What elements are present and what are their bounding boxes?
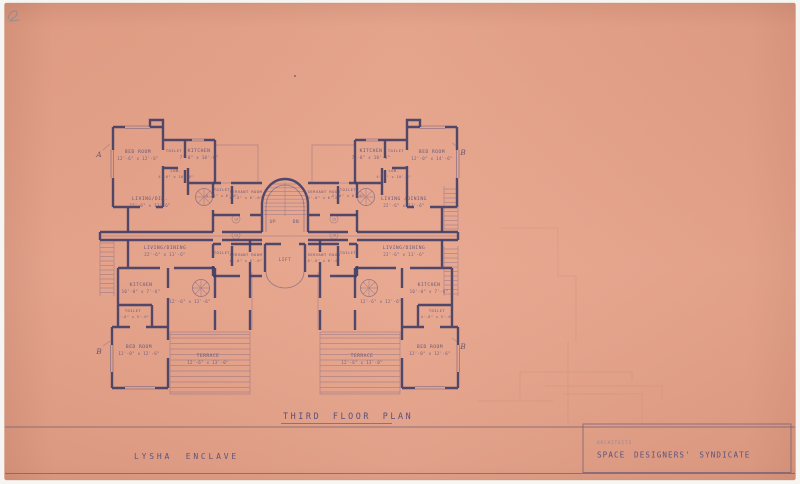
flat-tag: 14 <box>234 217 238 221</box>
svg-text:4'-6" x 10'-6": 4'-6" x 10'-6" <box>376 175 411 179</box>
svg-text:12'-0" x 14'-6": 12'-0" x 14'-6" <box>411 156 452 161</box>
svg-text:TOILET: TOILET <box>214 188 231 192</box>
svg-text:KITCHEN: KITCHEN <box>188 148 211 154</box>
flat-tag: 13 <box>234 233 238 237</box>
svg-text:BED ROOM: BED ROOM <box>417 344 443 350</box>
lift-label: LIFT <box>279 257 292 263</box>
svg-text:7'-0" x 10'-6": 7'-0" x 10'-6" <box>352 155 391 160</box>
svg-text:TERRACE: TERRACE <box>351 353 374 359</box>
architects-name: SPACE DESIGNERS' SYNDICATE <box>597 451 750 460</box>
svg-text:4'-6" x 5'-0": 4'-6" x 5'-0" <box>421 315 454 319</box>
svg-text:22'-6" x 11'-6": 22'-6" x 11'-6" <box>129 203 170 208</box>
section-marker-b-bottom-left: B <box>95 347 102 356</box>
svg-text:7'-0" x 10'-6": 7'-0" x 10'-6" <box>180 155 219 160</box>
room-label-tl-toilet: TOILET <box>166 149 183 153</box>
section-marker-b-bottom-right: B <box>459 342 466 351</box>
svg-text:6'-0" x 6'-6": 6'-0" x 6'-6" <box>230 196 263 200</box>
plan-title: THIRD FLOOR PLAN <box>283 411 413 421</box>
section-marker-a: A <box>95 150 102 159</box>
svg-text:22'-6" x 11'-6": 22'-6" x 11'-6" <box>383 203 424 208</box>
room-label-br-room-dims: 12'-6" x 12'-6" <box>360 299 401 304</box>
stair-up-label: UP <box>270 219 276 225</box>
svg-text:12'-0" x 12'-6": 12'-0" x 12'-6" <box>409 351 450 356</box>
room-label-tr-toilet: TOILET <box>388 149 405 153</box>
svg-text:4'-6" x 5'-0": 4'-6" x 5'-0" <box>117 315 150 319</box>
svg-text:TERRACE: TERRACE <box>197 353 220 359</box>
svg-text:22'-6" x 11'-6": 22'-6" x 11'-6" <box>144 252 185 257</box>
blueprint-sheet: 14 13 15 16 A B B B BED ROOM12'-6" x 12'… <box>0 0 800 484</box>
flat-tag: 15 <box>332 217 336 221</box>
section-marker-b-top: B <box>459 148 466 157</box>
room-label-bl-room-dims: 12'-6" x 12'-6" <box>169 299 210 304</box>
svg-text:10'-0" x 7'-6": 10'-0" x 7'-6" <box>410 289 449 294</box>
svg-text:KITCHEN: KITCHEN <box>360 148 383 154</box>
svg-text:6'-0" x 6'-6": 6'-0" x 6'-6" <box>230 259 263 263</box>
svg-text:TOILET: TOILET <box>429 309 446 313</box>
svg-text:12'-6" x 12'-6": 12'-6" x 12'-6" <box>117 156 158 161</box>
svg-text:22'-6" x 11'-6": 22'-6" x 11'-6" <box>383 252 424 257</box>
architects-label: ARCHITECTS <box>597 440 632 445</box>
paper-speck <box>294 75 296 77</box>
svg-text:10'-0" x 7'-6": 10'-0" x 7'-6" <box>122 289 161 294</box>
project-name: LYSHA ENCLAVE <box>134 452 239 461</box>
room-label-br-core-toilet: TOILET <box>340 251 357 255</box>
room-label-bl-core-toilet: TOILET <box>214 251 231 255</box>
svg-text:12'-6" x 13'-0": 12'-6" x 13'-0" <box>187 360 228 365</box>
svg-text:6'-0" x 6'-6": 6'-0" x 6'-6" <box>308 259 341 263</box>
svg-text:SERVANT ROOM: SERVANT ROOM <box>230 190 263 194</box>
svg-text:TOILET: TOILET <box>125 309 142 313</box>
stair-dn-label: DN <box>293 219 299 225</box>
svg-text:TOILET: TOILET <box>340 188 357 192</box>
svg-text:LIVING/DIN.: LIVING/DIN. <box>132 196 168 202</box>
flat-tag: 16 <box>332 233 336 237</box>
paper-shading-y <box>5 3 796 480</box>
svg-text:BED ROOM: BED ROOM <box>126 344 152 350</box>
svg-text:4'-0" x 6'-0": 4'-0" x 6'-0" <box>332 194 365 198</box>
svg-text:SERVANT ROOM: SERVANT ROOM <box>230 253 263 257</box>
svg-text:LIVING/DINING: LIVING/DINING <box>383 245 425 251</box>
svg-text:LOB.: LOB. <box>171 169 182 173</box>
svg-text:KITCHEN: KITCHEN <box>418 282 441 288</box>
svg-text:LIVING /DINING: LIVING /DINING <box>381 196 427 202</box>
svg-text:12'-0" x 12'-6": 12'-0" x 12'-6" <box>118 351 159 356</box>
svg-text:LOB.: LOB. <box>389 169 400 173</box>
svg-text:BED ROOM: BED ROOM <box>419 149 445 155</box>
svg-text:BED ROOM: BED ROOM <box>125 149 151 155</box>
svg-text:12'-6" x 13'-0": 12'-6" x 13'-0" <box>341 360 382 365</box>
svg-text:4'-6" x 10'-6": 4'-6" x 10'-6" <box>158 175 193 179</box>
svg-text:SERVANT ROOM: SERVANT ROOM <box>308 253 341 257</box>
svg-text:KITCHEN: KITCHEN <box>130 282 153 288</box>
svg-text:LIVING/DINING: LIVING/DINING <box>144 245 186 251</box>
scan-background: 14 13 15 16 A B B B BED ROOM12'-6" x 12'… <box>0 0 800 484</box>
